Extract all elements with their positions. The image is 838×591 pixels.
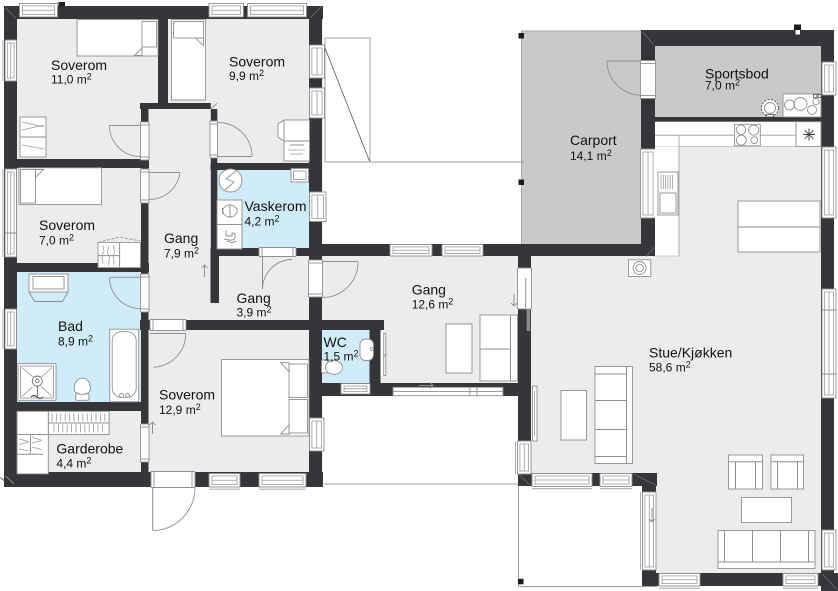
svg-text:Vaskerom: Vaskerom [245, 198, 307, 214]
svg-text:11,0 m2: 11,0 m2 [51, 72, 92, 87]
svg-text:14,1 m2: 14,1 m2 [570, 148, 612, 163]
svg-text:12,6 m2: 12,6 m2 [412, 297, 454, 312]
svg-text:58,6 m2: 58,6 m2 [649, 360, 691, 375]
svg-text:12,9 m2: 12,9 m2 [159, 402, 201, 417]
svg-text:Gang: Gang [412, 282, 446, 298]
svg-text:4,2 m2: 4,2 m2 [245, 214, 280, 229]
svg-text:Gang: Gang [164, 230, 198, 246]
svg-text:Soverom: Soverom [39, 217, 95, 233]
svg-text:Bad: Bad [58, 318, 83, 334]
svg-text:7,0 m2: 7,0 m2 [39, 233, 74, 248]
svg-text:Gang: Gang [237, 290, 271, 306]
svg-text:Garderobe: Garderobe [56, 441, 123, 457]
svg-text:3,9 m2: 3,9 m2 [237, 305, 272, 320]
svg-text:Stue/Kjøkken: Stue/Kjøkken [649, 345, 732, 361]
svg-text:Soverom: Soverom [51, 57, 107, 73]
svg-text:1,5 m2: 1,5 m2 [324, 349, 359, 364]
svg-text:8,9 m2: 8,9 m2 [58, 334, 93, 349]
svg-text:4,4 m2: 4,4 m2 [56, 455, 91, 470]
svg-text:Soverom: Soverom [159, 386, 215, 402]
svg-text:9,9 m2: 9,9 m2 [229, 68, 264, 83]
svg-text:Soverom: Soverom [229, 54, 285, 70]
svg-text:7,0 m2: 7,0 m2 [705, 78, 740, 93]
svg-text:Carport: Carport [570, 132, 617, 148]
svg-text:WC: WC [324, 334, 347, 350]
svg-text:7,9 m2: 7,9 m2 [164, 246, 199, 261]
